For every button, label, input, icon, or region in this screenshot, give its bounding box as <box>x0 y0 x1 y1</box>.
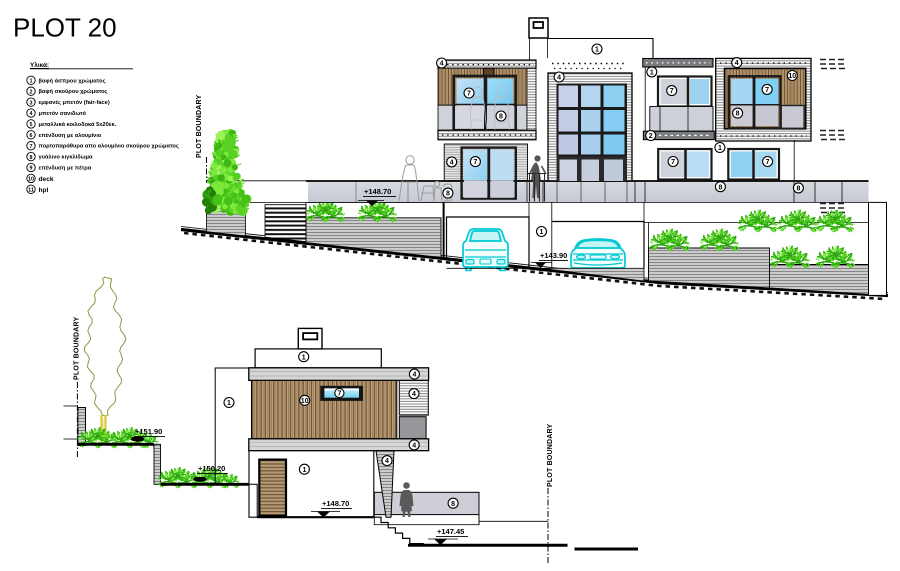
svg-text:+148.70: +148.70 <box>322 499 349 508</box>
svg-text:8: 8 <box>499 114 503 121</box>
svg-text:4: 4 <box>30 111 33 117</box>
svg-text:βαφή άσπρου χρώματος: βαφή άσπρου χρώματος <box>39 78 106 84</box>
svg-text:4: 4 <box>412 372 416 379</box>
svg-text:4: 4 <box>450 160 454 167</box>
svg-text:1: 1 <box>302 467 306 474</box>
svg-text:PLOT 20: PLOT 20 <box>13 13 117 43</box>
svg-text:+150.20: +150.20 <box>198 464 225 473</box>
svg-text:Υλικά:: Υλικά: <box>30 61 49 69</box>
svg-text:+147.45: +147.45 <box>437 527 464 536</box>
svg-text:1: 1 <box>227 400 231 407</box>
svg-text:1: 1 <box>540 229 544 236</box>
svg-text:5: 5 <box>30 122 33 128</box>
svg-text:3: 3 <box>30 100 33 106</box>
svg-text:4: 4 <box>412 391 416 398</box>
svg-text:7: 7 <box>671 159 675 166</box>
svg-text:8: 8 <box>446 191 450 198</box>
svg-text:4: 4 <box>385 458 389 465</box>
svg-text:7: 7 <box>766 159 770 166</box>
svg-text:μεταλλικά κοιλοδοκά 5x20εκ.: μεταλλικά κοιλοδοκά 5x20εκ. <box>39 122 117 128</box>
svg-text:1: 1 <box>302 354 306 361</box>
svg-text:9: 9 <box>30 166 33 172</box>
svg-text:hpl: hpl <box>39 187 49 194</box>
svg-text:7: 7 <box>30 144 33 150</box>
svg-text:6: 6 <box>30 133 33 139</box>
svg-text:8: 8 <box>718 184 722 191</box>
svg-text:1: 1 <box>650 70 654 77</box>
svg-text:+148.70: +148.70 <box>364 187 391 196</box>
svg-text:επένδυση με πέτρα: επένδυση με πέτρα <box>39 166 92 172</box>
svg-text:PLOT BOUNDARY: PLOT BOUNDARY <box>547 423 554 487</box>
svg-text:1: 1 <box>30 79 33 85</box>
svg-text:βαφή σκούρου χρώματος: βαφή σκούρου χρώματος <box>39 89 108 95</box>
svg-text:7: 7 <box>337 391 341 398</box>
svg-text:8: 8 <box>451 501 455 508</box>
svg-text:11: 11 <box>28 188 34 194</box>
svg-text:10: 10 <box>28 177 34 183</box>
svg-text:7: 7 <box>765 87 769 94</box>
svg-text:4: 4 <box>557 75 561 82</box>
svg-text:+143.90: +143.90 <box>540 251 567 260</box>
svg-text:2: 2 <box>649 133 653 140</box>
svg-text:πορτοπαράθυρα απο αλουμίνιο σκ: πορτοπαράθυρα απο αλουμίνιο σκούρου χρώμ… <box>39 144 179 150</box>
svg-text:γυάλινο κιγκλίδωμα: γυάλινο κιγκλίδωμα <box>39 155 93 161</box>
svg-text:μπετόν σανιδωτό: μπετόν σανιδωτό <box>39 111 87 117</box>
svg-text:7: 7 <box>473 159 477 166</box>
svg-text:εμφανές μπετόν (fair-face): εμφανές μπετόν (fair-face) <box>39 100 110 106</box>
svg-text:1: 1 <box>718 145 722 152</box>
svg-text:4: 4 <box>412 443 416 450</box>
svg-text:8: 8 <box>736 111 740 118</box>
svg-text:1: 1 <box>595 47 599 54</box>
svg-text:10: 10 <box>788 73 796 80</box>
svg-text:deck: deck <box>39 176 54 183</box>
svg-text:10: 10 <box>301 398 309 405</box>
svg-text:8: 8 <box>30 155 33 161</box>
svg-text:4: 4 <box>440 61 444 68</box>
svg-text:+151.90: +151.90 <box>135 427 162 436</box>
svg-text:4: 4 <box>735 60 739 67</box>
svg-text:7: 7 <box>670 88 674 95</box>
svg-text:PLOT BOUNDARY: PLOT BOUNDARY <box>196 94 203 158</box>
svg-text:7: 7 <box>467 91 471 98</box>
svg-text:2: 2 <box>30 89 33 95</box>
svg-text:επένδυση με αλουμίνιο: επένδυση με αλουμίνιο <box>39 133 102 139</box>
svg-text:8: 8 <box>796 186 800 193</box>
svg-text:PLOT BOUNDARY: PLOT BOUNDARY <box>74 316 81 380</box>
